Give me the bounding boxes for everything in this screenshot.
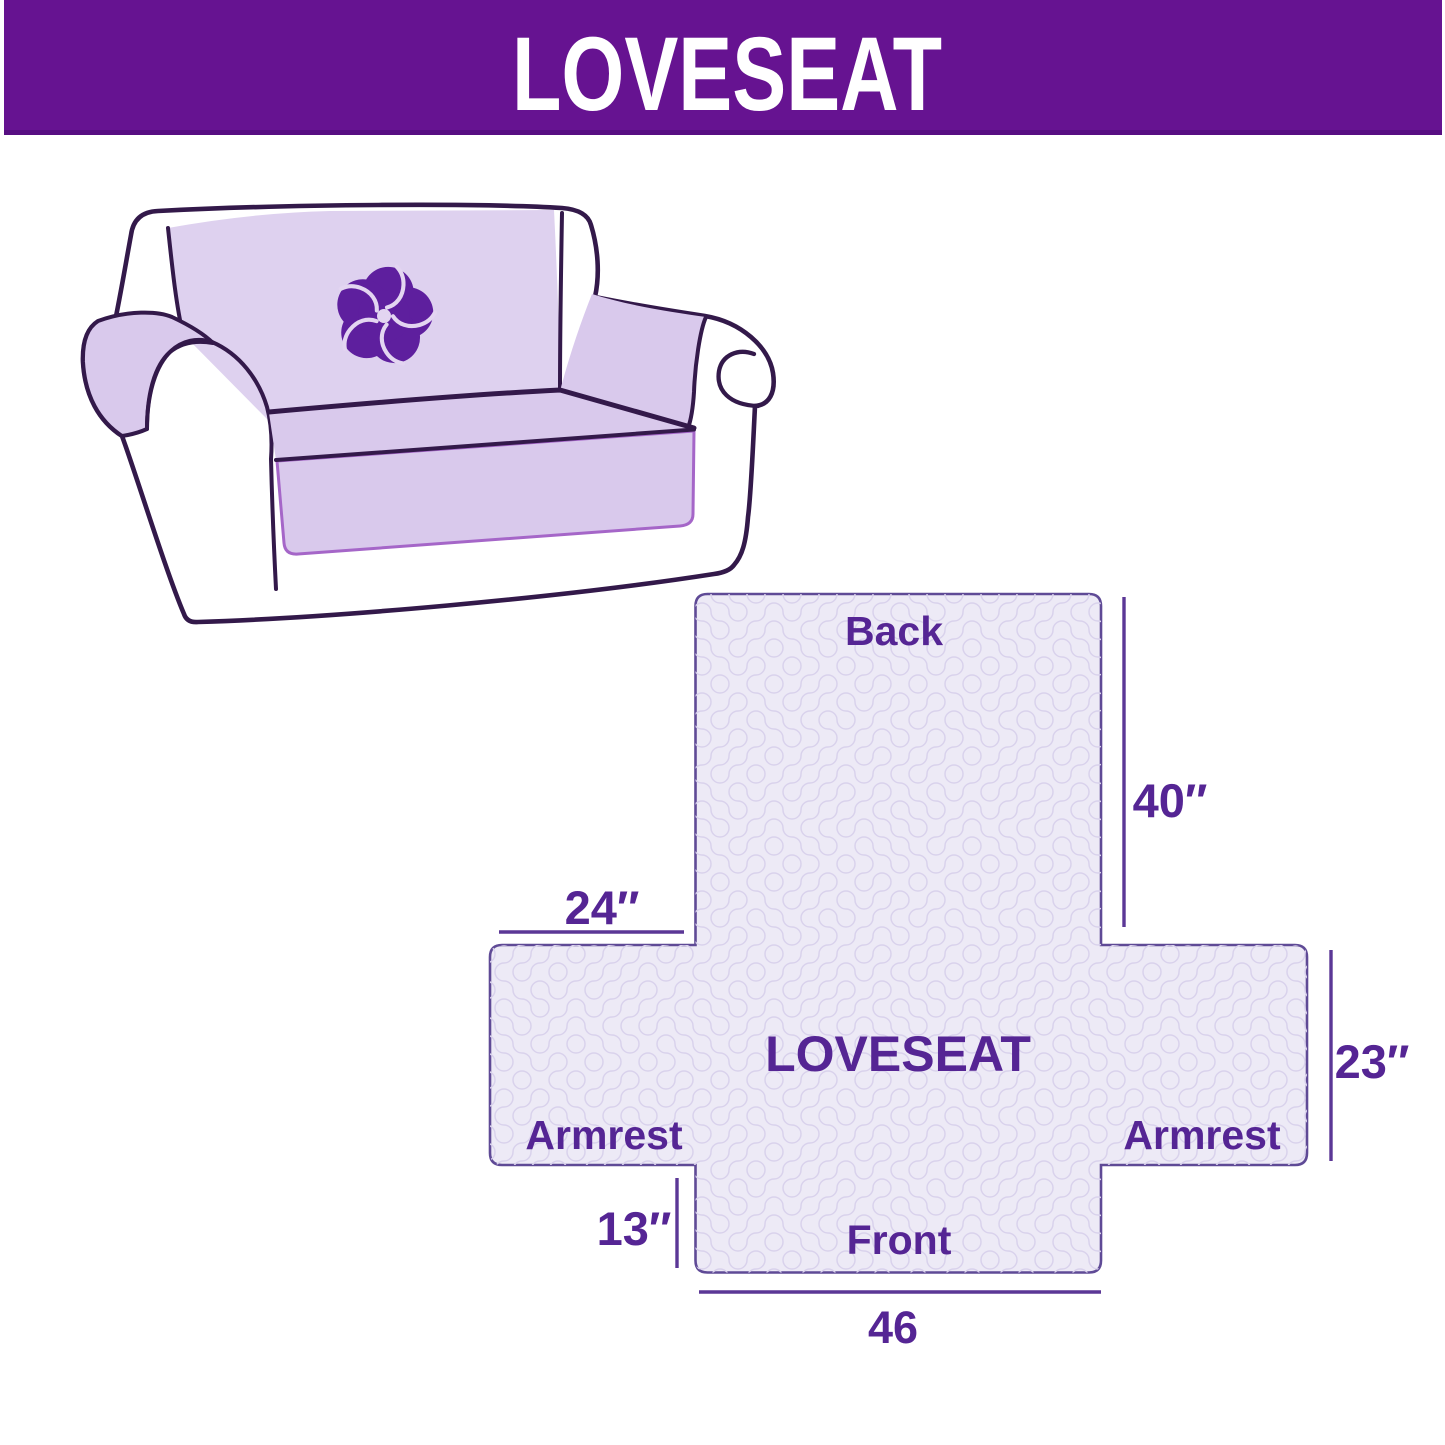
svg-text:Back: Back (845, 608, 943, 654)
svg-text:40″: 40″ (1133, 774, 1208, 827)
svg-text:24″: 24″ (565, 881, 640, 934)
svg-text:Armrest: Armrest (1123, 1112, 1281, 1158)
svg-text:46: 46 (868, 1302, 918, 1353)
svg-text:23″: 23″ (1335, 1035, 1410, 1088)
svg-text:Armrest: Armrest (525, 1112, 683, 1158)
svg-text:LOVESEAT: LOVESEAT (512, 16, 942, 133)
svg-text:LOVESEAT: LOVESEAT (765, 1026, 1031, 1082)
svg-text:13″: 13″ (597, 1202, 672, 1255)
svg-text:Front: Front (847, 1217, 952, 1263)
